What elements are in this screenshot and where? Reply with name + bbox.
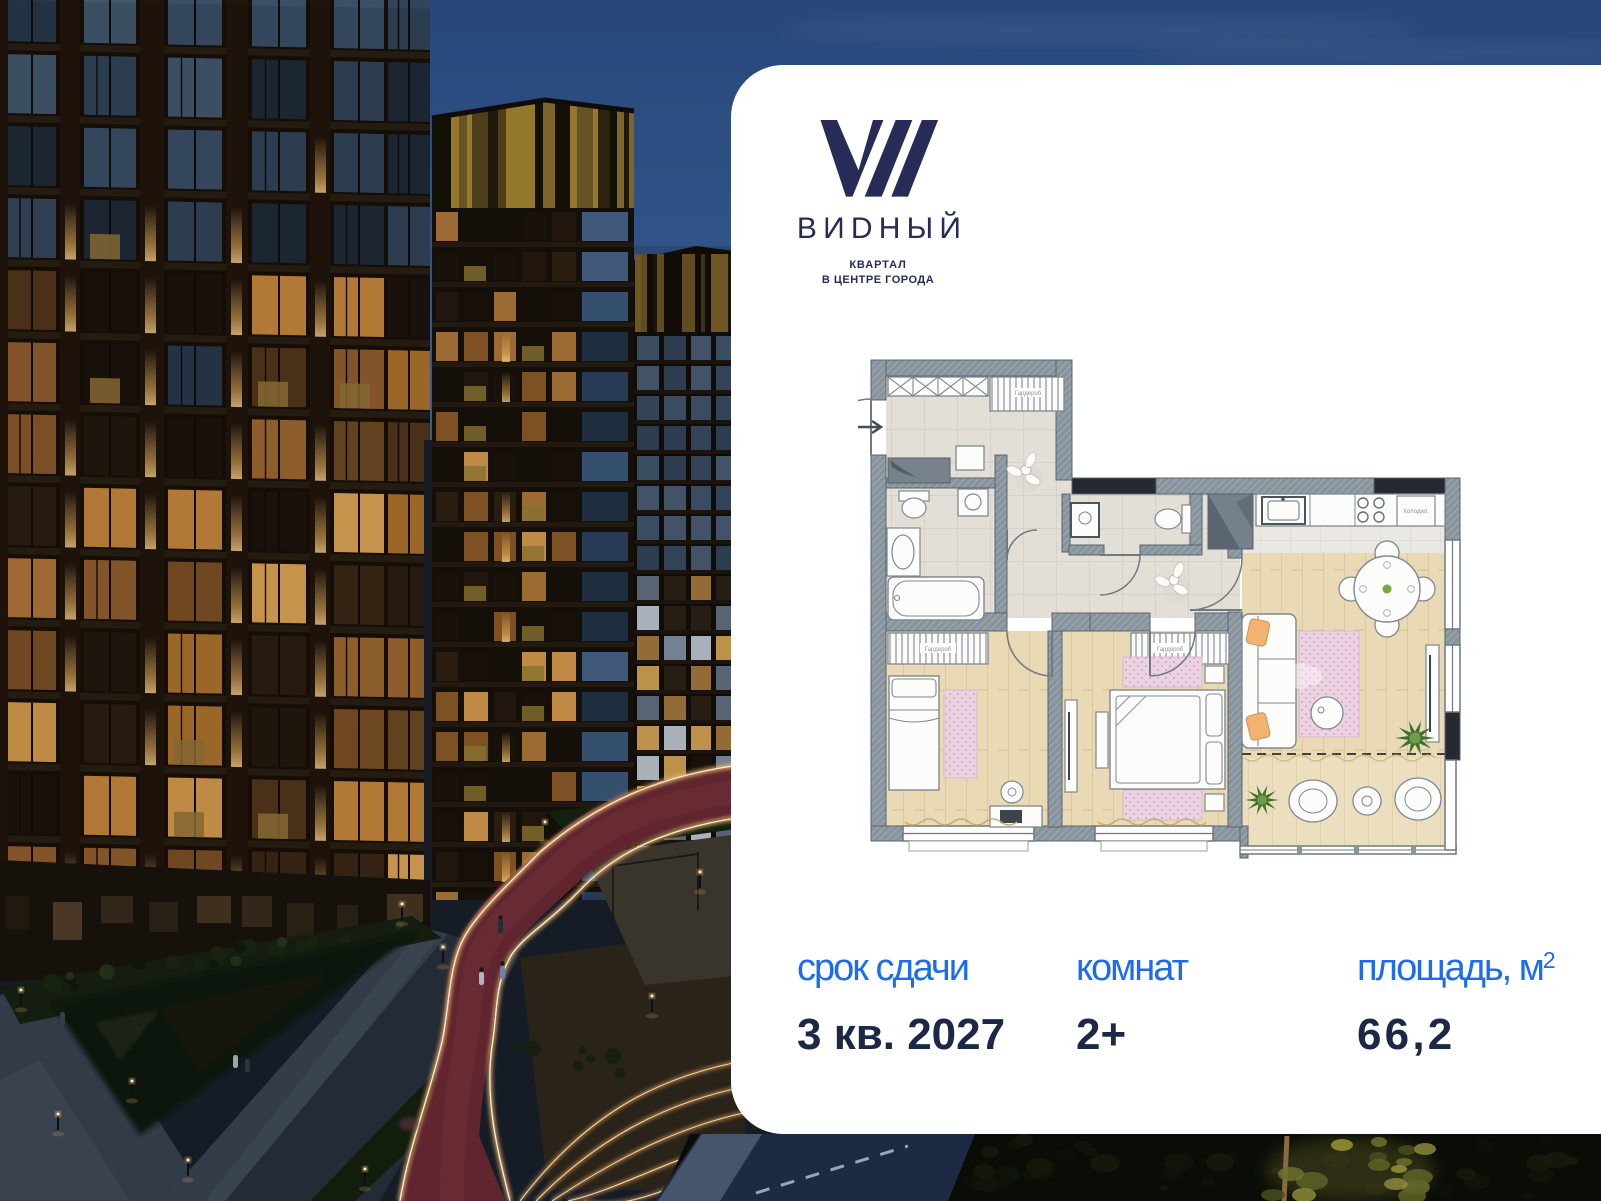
- svg-text:Гардероб: Гардероб: [925, 647, 952, 653]
- svg-text:Гардероб: Гардероб: [1157, 647, 1184, 653]
- svg-text:Холодил.: Холодил.: [1403, 509, 1429, 515]
- svg-text:Гардероб: Гардероб: [1015, 391, 1042, 397]
